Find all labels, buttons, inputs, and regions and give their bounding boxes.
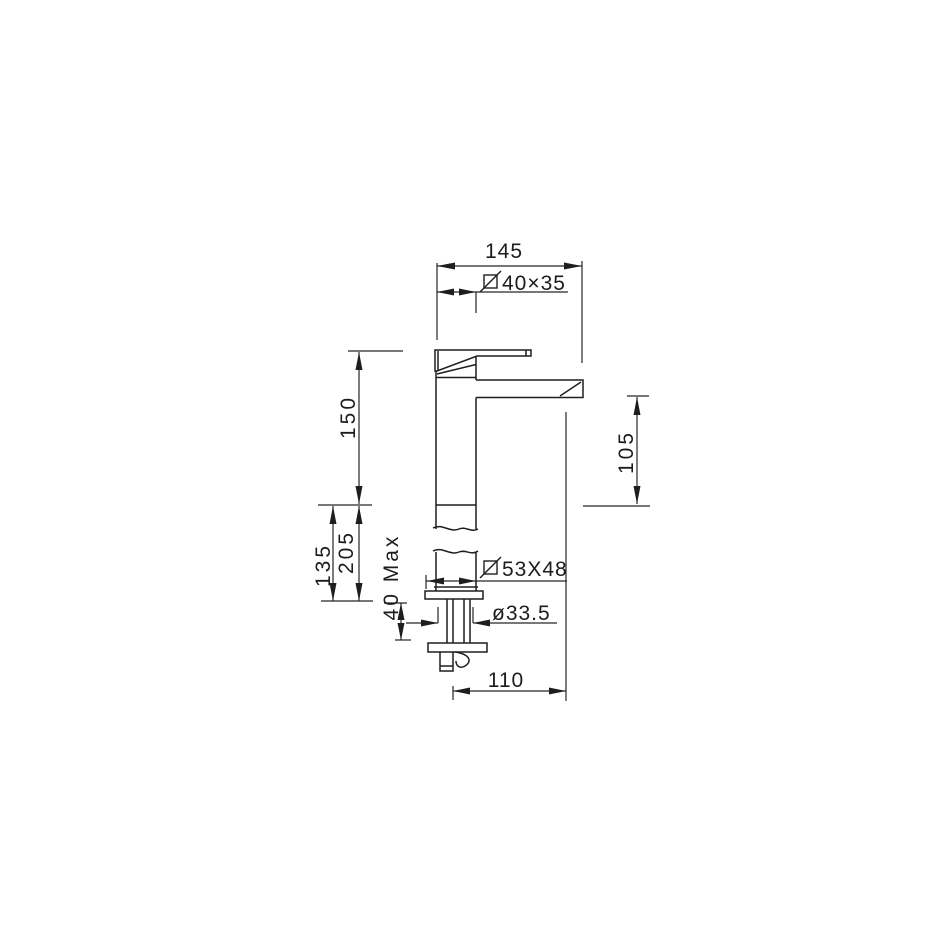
- dim-shank-diameter: ø33.5: [406, 602, 557, 627]
- dim-spout-section: 40×35: [437, 271, 568, 313]
- base-flange: [425, 591, 483, 599]
- arrowhead: [634, 486, 641, 504]
- shank-tail: [440, 652, 453, 671]
- arrowhead: [356, 486, 363, 504]
- arrowhead: [437, 289, 454, 296]
- arrowhead: [473, 620, 490, 627]
- dim-135-label: 135: [312, 543, 335, 587]
- dim-105-label: 105: [615, 430, 638, 474]
- dim-base-section: 53X48: [426, 557, 568, 589]
- arrowhead: [356, 583, 363, 601]
- dim-40max-label: 40 Max: [380, 534, 403, 621]
- arrowhead: [437, 263, 455, 270]
- arrowhead: [330, 506, 337, 524]
- arrowhead: [356, 506, 363, 524]
- arrowhead: [459, 578, 476, 585]
- arrowhead: [564, 263, 582, 270]
- break-line-lower: [433, 550, 478, 553]
- break-line-upper: [433, 527, 478, 531]
- handle-lever: [435, 350, 531, 371]
- hose-stub: [455, 652, 469, 667]
- spout-outlet-detail: [560, 382, 581, 396]
- dim-205-label: 205: [335, 530, 358, 574]
- drawing-canvas: 145 40×35 150 135 205: [0, 0, 950, 950]
- dim-base-reach: 110: [453, 412, 566, 701]
- arrowhead: [453, 688, 470, 695]
- dim-lower-height-a: 135: [312, 506, 337, 601]
- dim-145-label: 145: [485, 240, 523, 263]
- dim-overall-width: 145: [437, 240, 582, 363]
- mounting-nut: [428, 643, 487, 652]
- dim-33-5-label: ø33.5: [492, 602, 551, 625]
- square-section-icon: [480, 557, 501, 578]
- faucet-technical-drawing: 145 40×35 150 135 205: [0, 0, 950, 950]
- dim-53x48-label: 53X48: [502, 558, 568, 581]
- dim-40x35-label: 40×35: [502, 272, 566, 295]
- arrowhead: [398, 623, 405, 640]
- spout: [476, 380, 583, 398]
- arrowhead: [356, 352, 363, 370]
- square-section-icon: [480, 271, 501, 292]
- dim-spout-height: 105: [583, 396, 650, 506]
- dim-110-label: 110: [488, 669, 524, 692]
- dim-upper-height: 150: [337, 351, 403, 504]
- arrowhead: [421, 620, 438, 627]
- arrowhead: [459, 289, 476, 296]
- dim-counter-max: 40 Max: [380, 534, 411, 640]
- arrowhead: [549, 688, 566, 695]
- arrowhead: [634, 397, 641, 415]
- dim-150-label: 150: [337, 395, 360, 439]
